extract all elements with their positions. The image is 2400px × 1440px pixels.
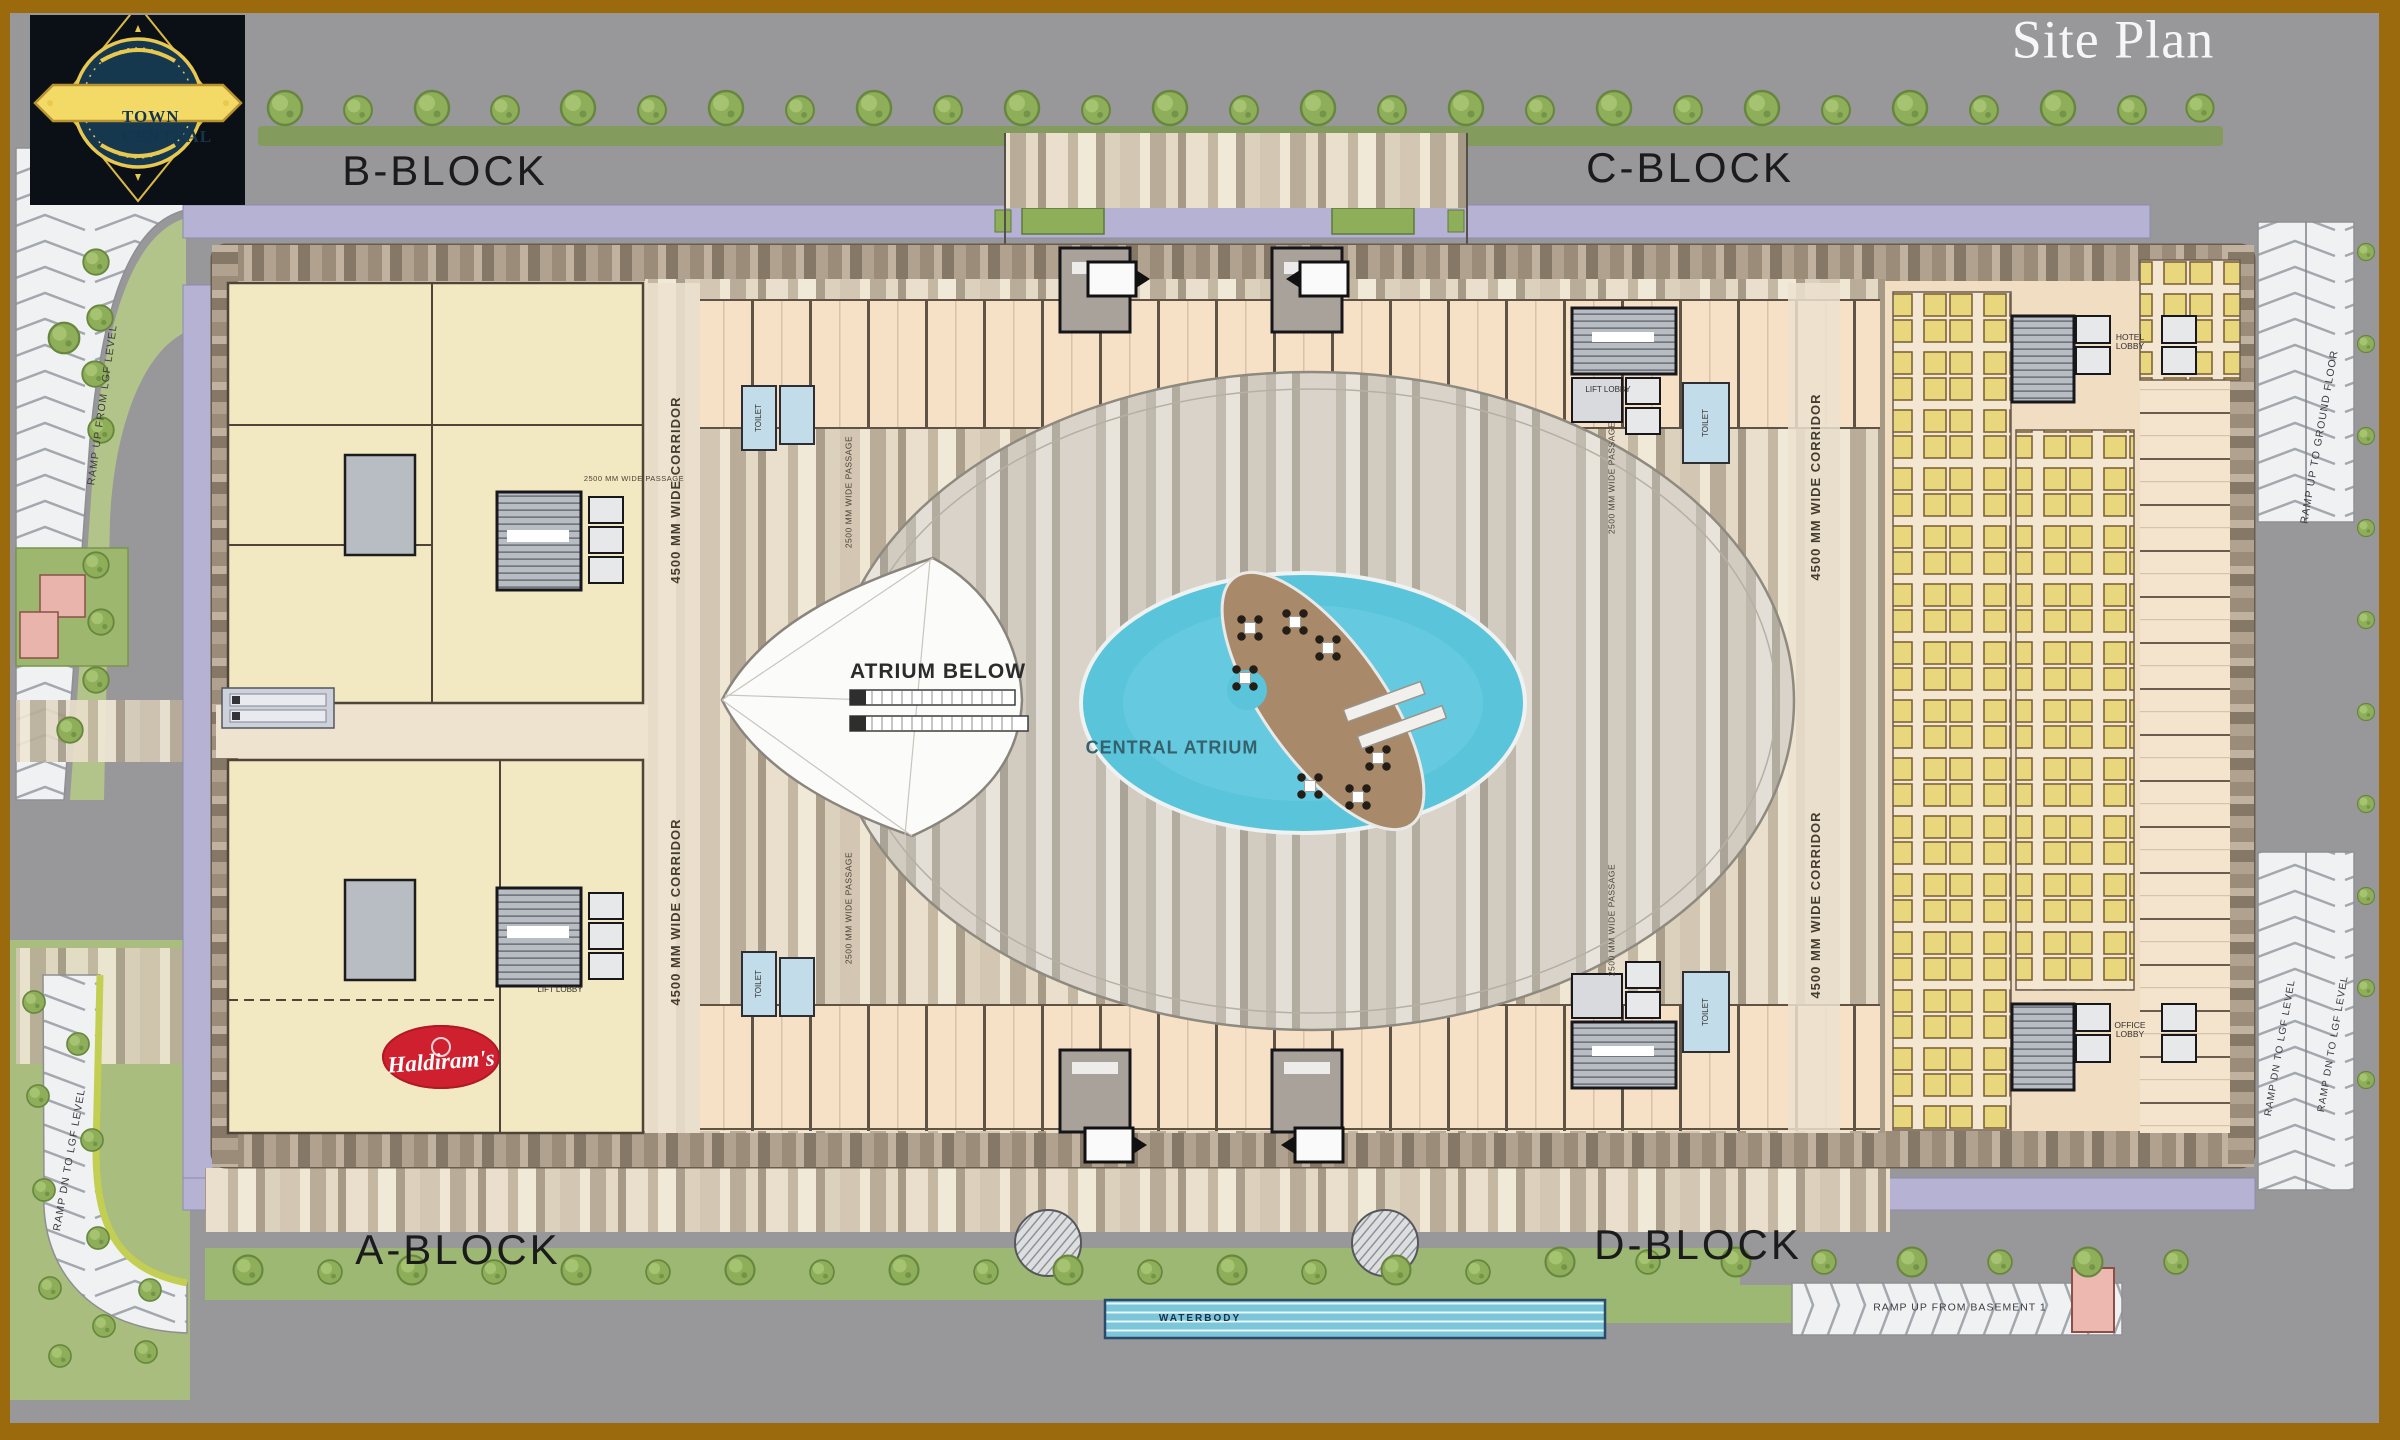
- lift-lobby-label: LIFT LOBBY: [1585, 386, 1630, 394]
- block-label-b: B-BLOCK: [342, 149, 547, 193]
- page-title: Site Plan: [2012, 12, 2215, 69]
- passage-label: 2500 MM WIDE PASSAGE: [845, 852, 854, 964]
- ramp-label-up-from-basement: RAMP UP FROM BASEMENT 1: [1873, 1302, 2047, 1313]
- passage-label: 2500 MM WIDE PASSAGE: [845, 436, 854, 548]
- corridor-label: 4500 MM WIDE CORRIDOR: [669, 396, 683, 583]
- brand-name: TOWN CENTRAL: [122, 107, 212, 147]
- toilet-label: TOILET: [755, 970, 763, 998]
- passage-label: 2500 MM WIDE PASSAGE: [1608, 422, 1617, 534]
- west-walkway: [183, 285, 213, 1180]
- waterbody-label: WATERBODY: [1159, 1314, 1241, 1325]
- mall-building: [212, 245, 2254, 1167]
- a-block-core: [497, 888, 623, 986]
- site-plan-page: { "header": { "brand": "TOWN CENTRAL", "…: [0, 0, 2400, 1440]
- corridor-label: 4500 MM WIDE CORRIDOR: [1809, 811, 1823, 998]
- b-block-core: [497, 492, 623, 590]
- block-label-a: A-BLOCK: [355, 1228, 560, 1272]
- corridor-label: 4500 MM WIDE CORRIDOR: [1809, 393, 1823, 580]
- north-walkway: [183, 205, 2150, 238]
- town-central-logo: TOWN CENTRAL: [30, 15, 245, 205]
- office-lobby-label: OFFICE LOBBY: [2104, 1021, 2156, 1039]
- hotel-lobby-label: HOTEL LOBBY: [2104, 333, 2156, 351]
- passage-label: 2500 MM WIDE PASSAGE: [1608, 864, 1617, 976]
- escalator-plaque: [222, 688, 334, 728]
- corridor-label: 4500 MM WIDE CORRIDOR: [669, 818, 683, 1005]
- central-atrium-label: CENTRAL ATRIUM: [1086, 739, 1259, 758]
- block-label-c: C-BLOCK: [1586, 146, 1794, 190]
- toilet-label: TOILET: [755, 404, 763, 432]
- passage-label: 2500 MM WIDE PASSAGE: [584, 475, 684, 483]
- atrium-below-label: ATRIUM BELOW: [850, 661, 1026, 683]
- lift-lobby-label: LIFT LOBBY: [537, 986, 582, 994]
- site-plan-drawing: [0, 0, 2400, 1440]
- block-label-d: D-BLOCK: [1594, 1223, 1802, 1267]
- toilet-label: TOILET: [1702, 998, 1710, 1026]
- toilet-label: TOILET: [1702, 409, 1710, 437]
- haldirams-logo: Haldiram's: [382, 1025, 500, 1089]
- haldirams-label: Haldiram's: [387, 1045, 496, 1078]
